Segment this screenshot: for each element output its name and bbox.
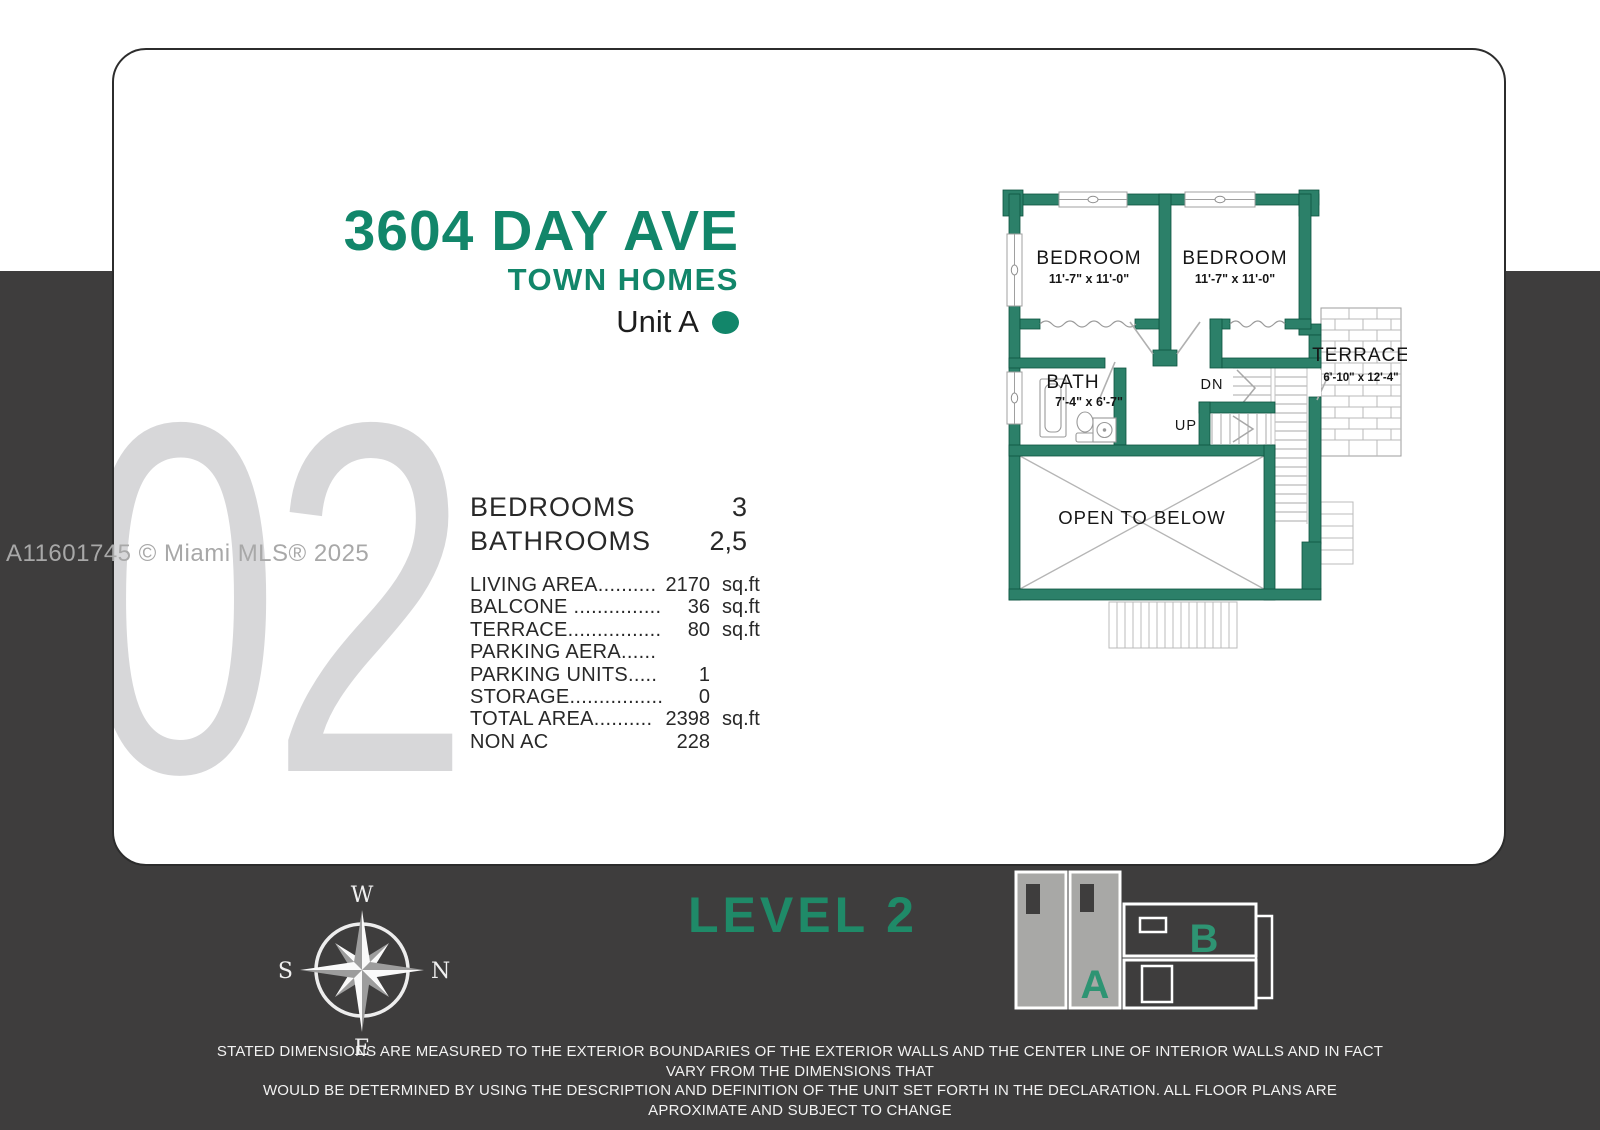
- disclaimer-line1: STATED DIMENSIONS ARE MEASURED TO THE EX…: [215, 1042, 1385, 1081]
- stat-label: NON AC: [470, 731, 655, 753]
- stat-value: 0: [655, 686, 710, 708]
- unit-color-dot-icon: [712, 311, 739, 334]
- stat-value: 80: [655, 619, 710, 641]
- address-title: 3604 DAY AVE: [294, 200, 739, 262]
- stat-value: 3: [685, 490, 747, 524]
- floorplan-sheet: 02 3604 DAY AVE TOWN HOMES Unit A BEDROO…: [0, 0, 1600, 1130]
- stat-unit: sq.ft: [710, 574, 762, 596]
- floorplan-drawing: BEDROOM 11'-7" x 11'-0" BEDROOM 11'-7" x…: [987, 172, 1407, 672]
- dn-label: DN: [1201, 377, 1224, 393]
- open-to-below-label: OPEN TO BELOW: [1058, 507, 1226, 528]
- compass-long-points: [300, 910, 424, 1032]
- stat-label: STORAGE................: [470, 686, 655, 708]
- bedroom1-label: BEDROOM: [1036, 248, 1141, 269]
- terrace-door-gap: [1309, 370, 1321, 396]
- stat-unit: [710, 664, 762, 686]
- stat-unit: [710, 731, 762, 753]
- stat-value: 1: [655, 664, 710, 686]
- stat-value: [655, 641, 710, 663]
- stats-details: LIVING AREA.......... 2170 sq.ft BALCONE…: [470, 574, 760, 753]
- unit-label: Unit A: [616, 304, 699, 339]
- stat-label: BATHROOMS: [470, 524, 685, 558]
- disclaimer-line2: WOULD BE DETERMINED BY USING THE DESCRIP…: [215, 1081, 1385, 1120]
- stat-value: 36: [655, 596, 710, 618]
- siteplan-unit-a-label: A: [1081, 963, 1110, 1007]
- stat-label: BALCONE ...............: [470, 596, 655, 618]
- stat-label: PARKING UNITS.....: [470, 664, 655, 686]
- stat-label: BEDROOMS: [470, 490, 685, 524]
- terrace-label: TERRACE: [1312, 345, 1407, 366]
- terrace-dims: 6'-10" x 12'-4": [1323, 372, 1398, 384]
- compass-top-letter: W: [351, 883, 374, 908]
- siteplan-unit-b-label: B: [1190, 917, 1219, 961]
- stat-label: PARKING AERA......: [470, 641, 655, 663]
- stat-value: 228: [655, 731, 710, 753]
- stat-value: 2,5: [685, 524, 747, 558]
- stat-unit: sq.ft: [710, 596, 762, 618]
- compass-left-letter: S: [278, 959, 293, 984]
- stat-unit: sq.ft: [710, 619, 762, 641]
- page-number-watermark: 02: [112, 348, 460, 848]
- bedroom2-label: BEDROOM: [1182, 248, 1287, 269]
- stat-unit: sq.ft: [710, 708, 762, 730]
- stats-primary: BEDROOMS 3 BATHROOMS 2,5: [470, 490, 760, 558]
- bath-dims: 7'-4" x 6'-7": [1055, 395, 1123, 409]
- mls-watermark: A11601745 © Miami MLS® 2025: [6, 540, 369, 568]
- bedroom1-dims: 11'-7" x 11'-0": [1049, 272, 1129, 286]
- stat-unit: [710, 641, 762, 663]
- stat-label: TERRACE................: [470, 619, 655, 641]
- plan-card: 02 3604 DAY AVE TOWN HOMES Unit A BEDROO…: [112, 48, 1506, 866]
- bedroom2-dims: 11'-7" x 11'-0": [1195, 272, 1275, 286]
- unit-row: Unit A: [294, 302, 739, 342]
- stats-block: BEDROOMS 3 BATHROOMS 2,5 LIVING AREA....…: [470, 490, 760, 753]
- up-label: UP: [1175, 418, 1197, 434]
- compass-rose: W N E S: [270, 870, 460, 1065]
- stat-value: 2170: [655, 574, 710, 596]
- stat-label: TOTAL AREA..........: [470, 708, 655, 730]
- level-label: LEVEL 2: [688, 886, 918, 944]
- disclaimer: STATED DIMENSIONS ARE MEASURED TO THE EX…: [215, 1042, 1385, 1120]
- compass-right-letter: N: [431, 959, 450, 984]
- stat-value: 2398: [655, 708, 710, 730]
- stat-unit: [710, 686, 762, 708]
- stat-label: LIVING AREA..........: [470, 574, 655, 596]
- bath-label: BATH: [1046, 372, 1099, 393]
- project-subtitle: TOWN HOMES: [294, 262, 739, 298]
- title-block: 3604 DAY AVE TOWN HOMES Unit A: [294, 200, 739, 342]
- siteplan-key: A B: [1012, 866, 1292, 1016]
